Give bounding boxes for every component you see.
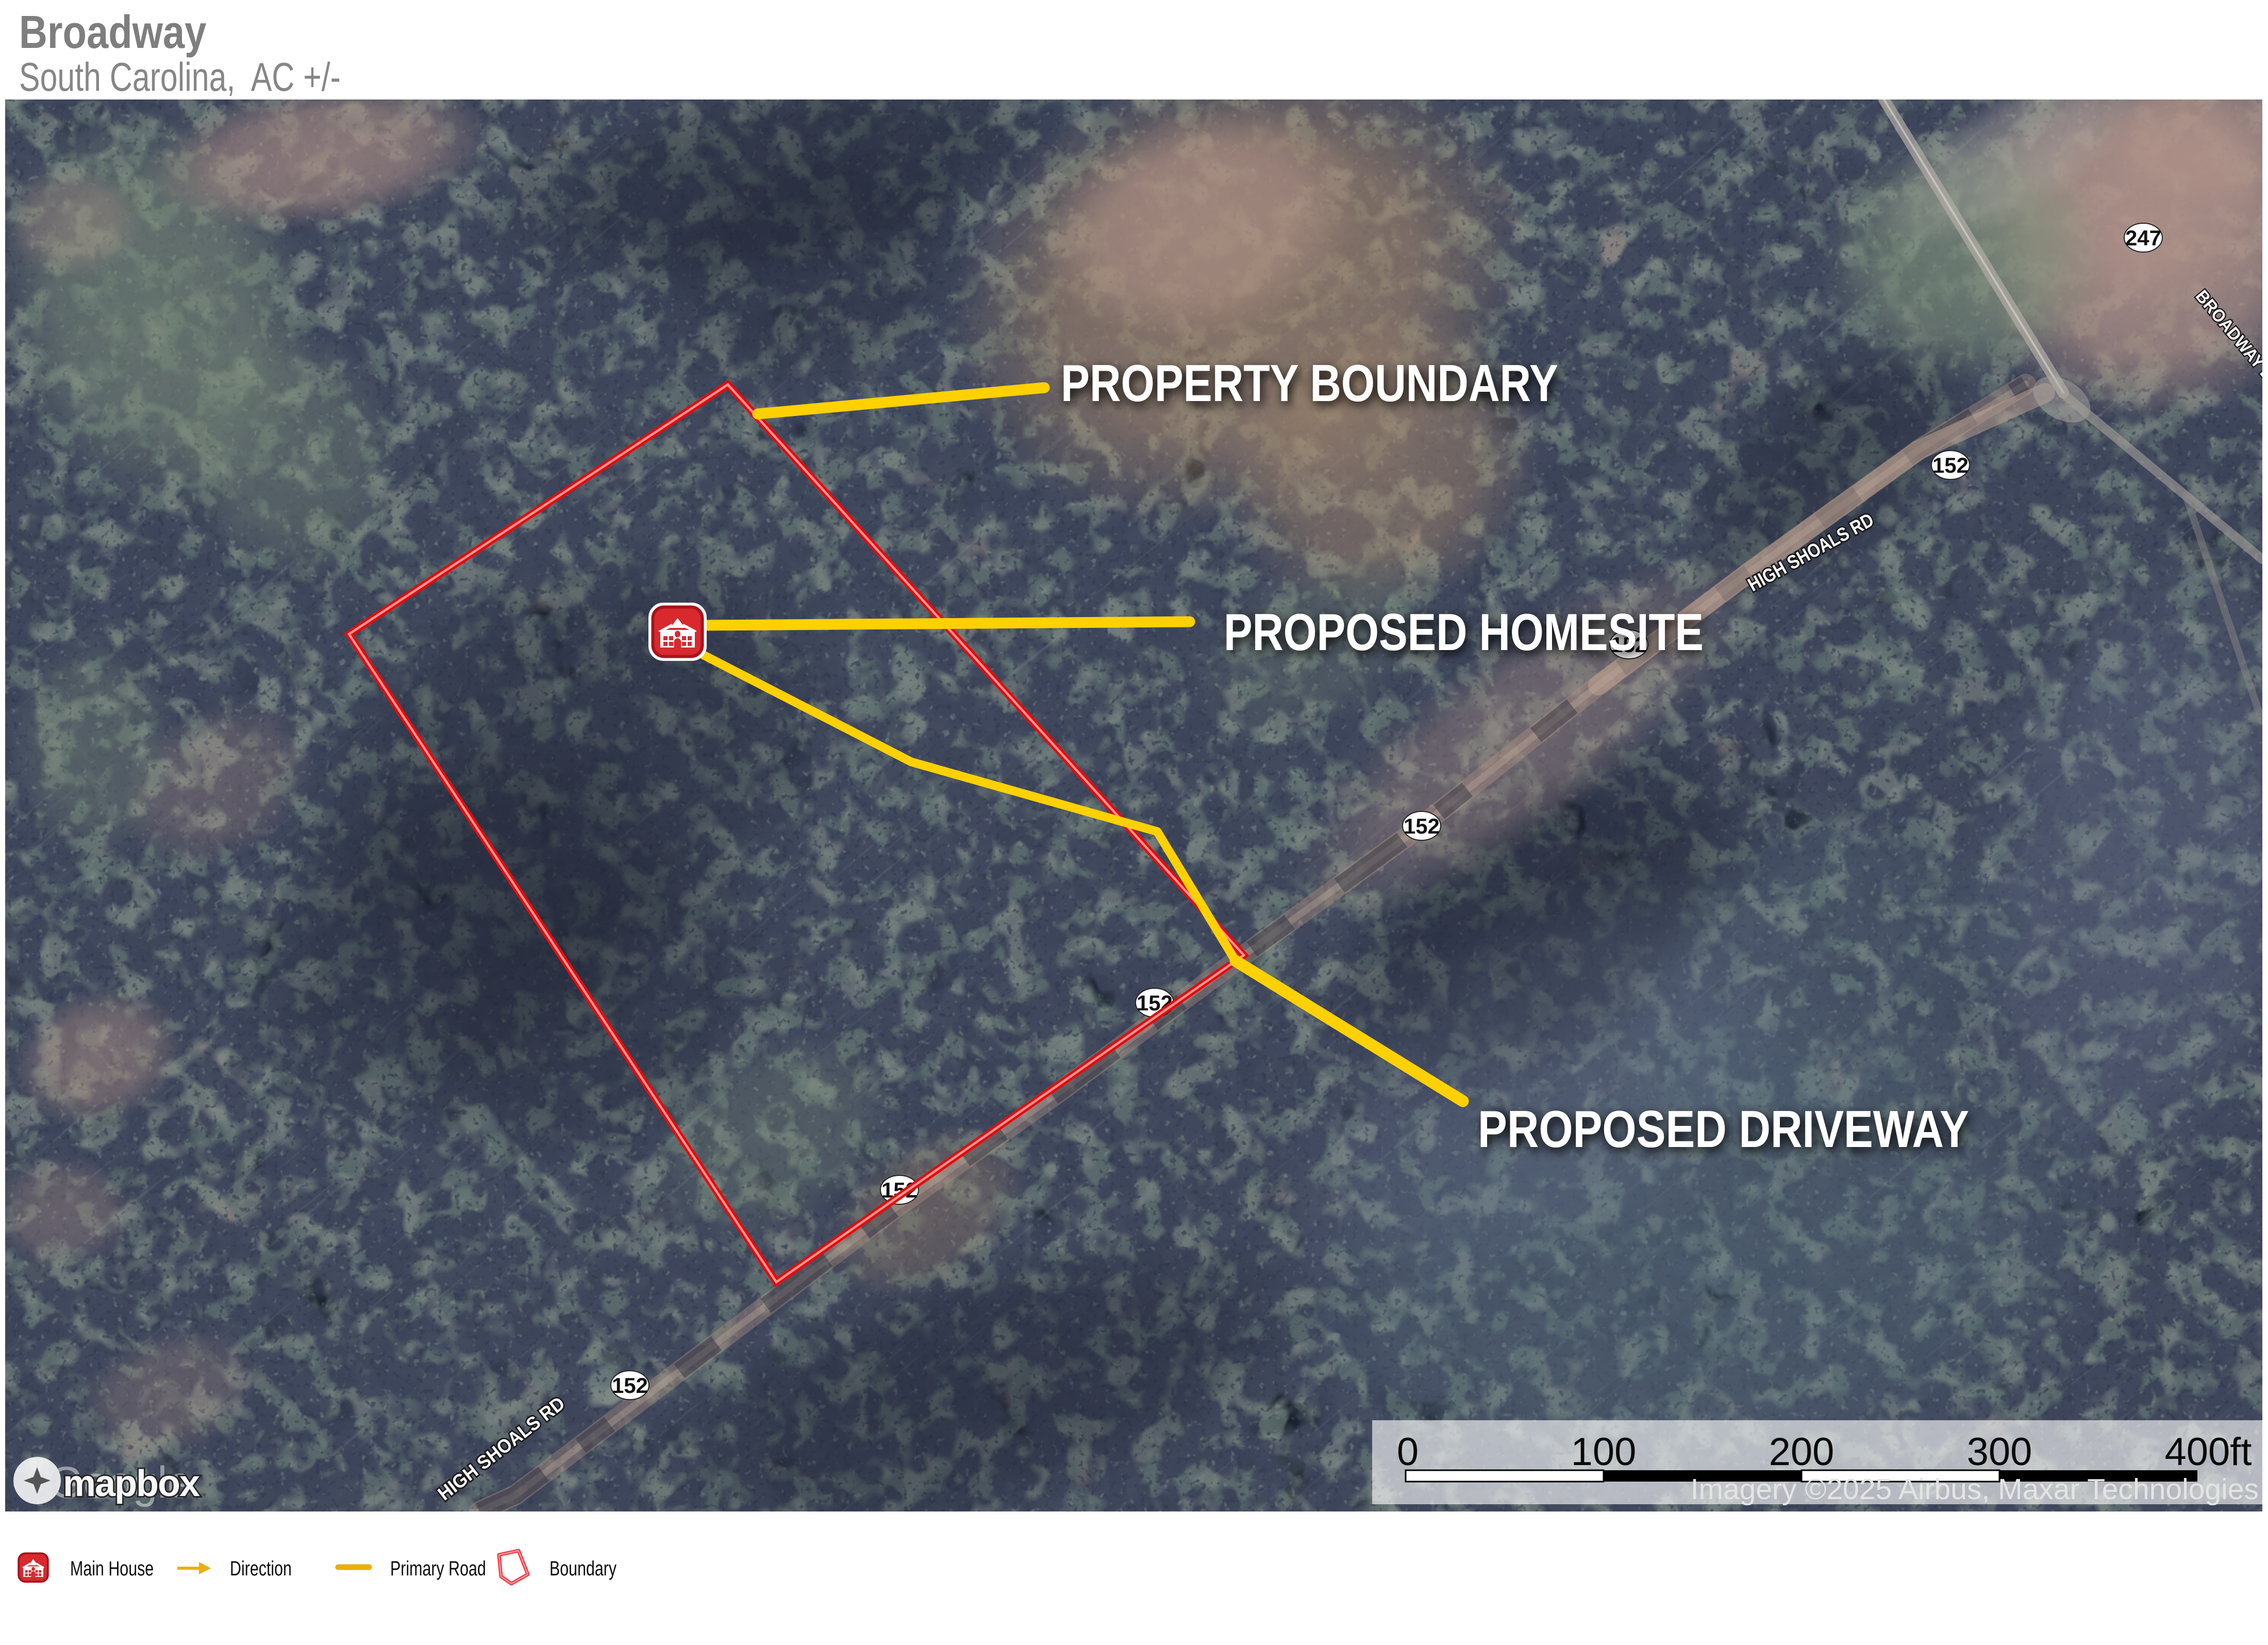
svg-text:200: 200 [1769,1430,1835,1474]
svg-text:300: 300 [1967,1430,2032,1474]
svg-text:400ft: 400ft [2164,1430,2252,1474]
svg-text:Imagery ©2025 Airbus, Maxar Te: Imagery ©2025 Airbus, Maxar Technologies [1691,1473,2259,1506]
svg-text:0: 0 [1397,1430,1419,1474]
svg-text:PROPOSED DRIVEWAY: PROPOSED DRIVEWAY [1478,1101,1969,1158]
svg-text:PROPOSED HOMESITE: PROPOSED HOMESITE [1224,604,1704,661]
svg-text:100: 100 [1571,1430,1637,1474]
svg-text:247: 247 [2125,226,2161,250]
svg-text:152: 152 [612,1373,648,1398]
svg-text:mapbox: mapbox [63,1463,200,1504]
svg-text:152: 152 [1404,814,1440,838]
svg-text:PROPERTY BOUNDARY: PROPERTY BOUNDARY [1061,355,1558,412]
svg-text:152: 152 [1932,453,1969,477]
